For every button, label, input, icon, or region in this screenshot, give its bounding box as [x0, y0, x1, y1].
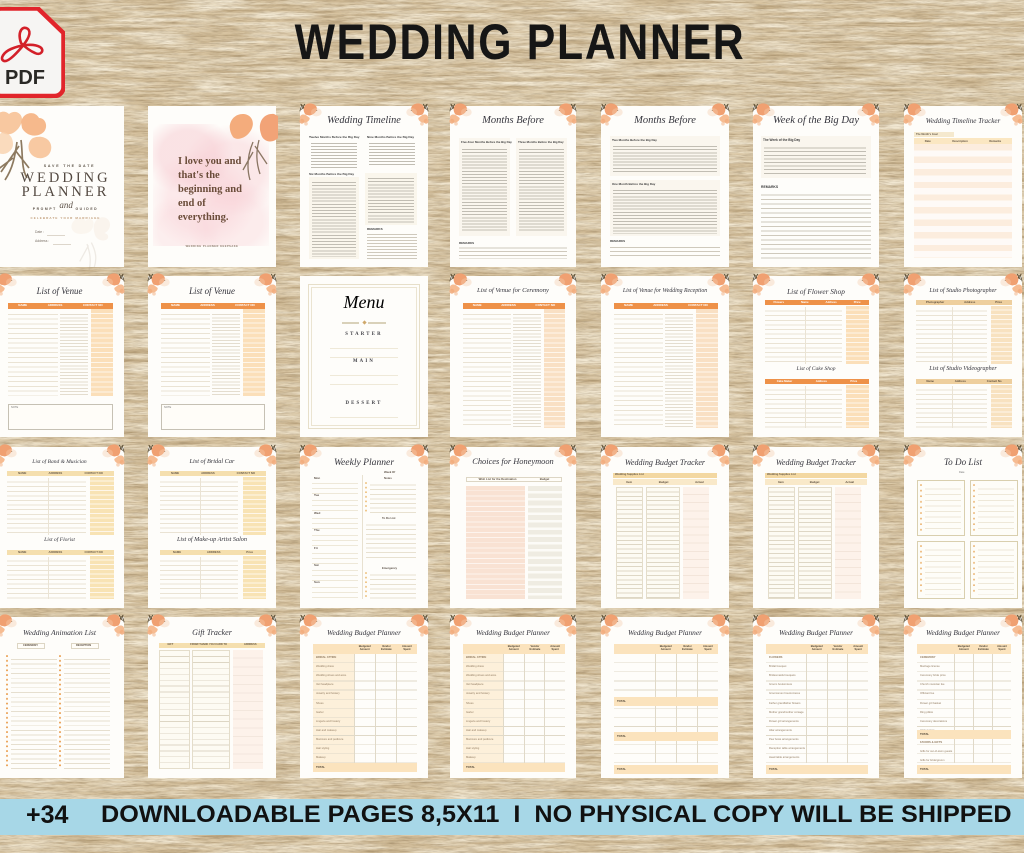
svg-text:PDF: PDF	[5, 67, 45, 89]
